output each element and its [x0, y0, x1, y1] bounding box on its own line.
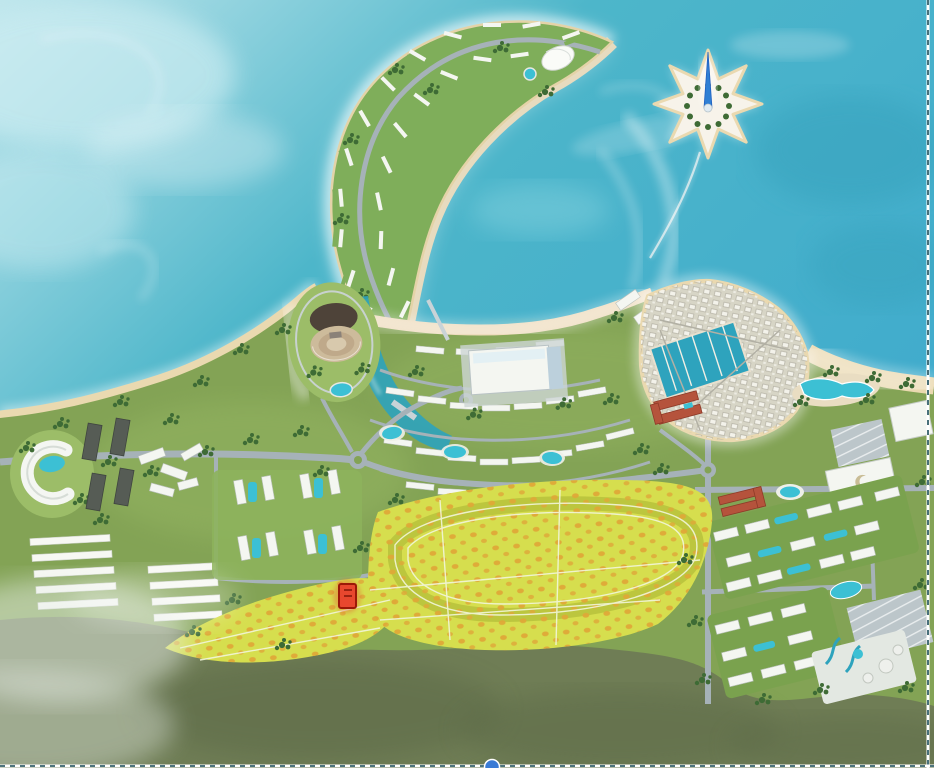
selection-resize-handle[interactable] — [485, 760, 500, 768]
apartment-compound — [212, 469, 362, 580]
masterplan-image[interactable] — [0, 0, 934, 768]
masterplan-svg — [0, 0, 934, 768]
left-resort — [10, 430, 94, 518]
selected-plot-marker — [333, 579, 361, 613]
